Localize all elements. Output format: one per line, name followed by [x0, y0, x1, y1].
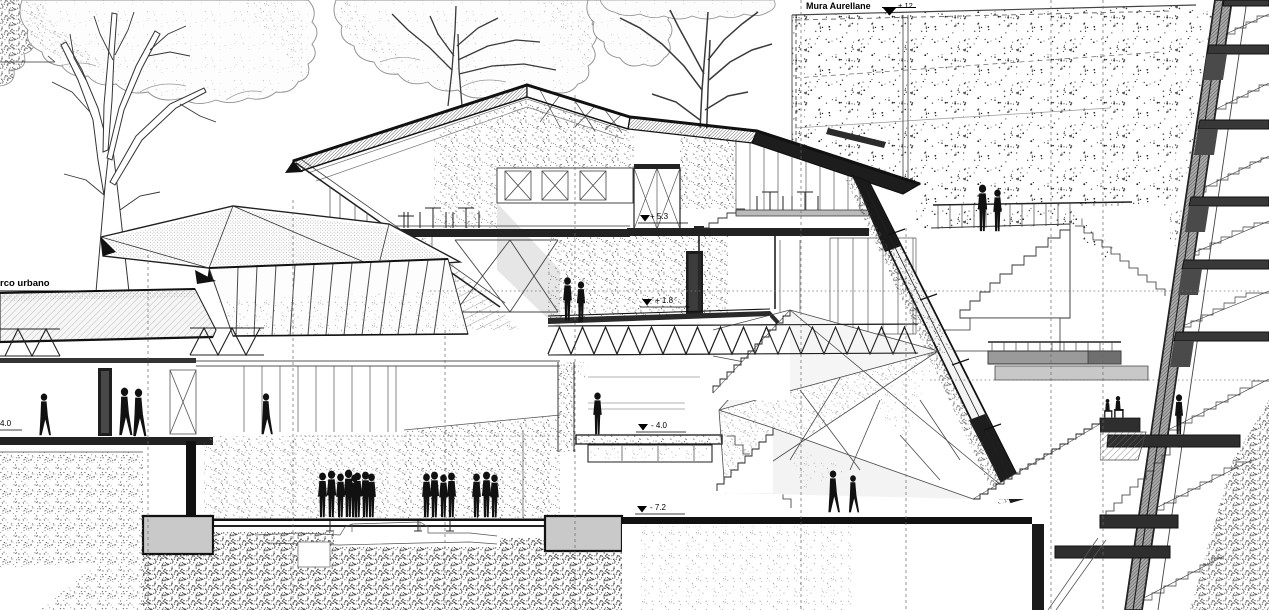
svg-text:- 7.2: - 7.2 — [650, 503, 667, 512]
svg-text:+ 12: + 12 — [898, 1, 913, 10]
svg-text:+ 1.8: + 1.8 — [655, 296, 674, 305]
svg-text:+ 5.3: + 5.3 — [650, 212, 669, 221]
svg-text:- 4.0: - 4.0 — [651, 421, 668, 430]
svg-text:4.0: 4.0 — [0, 419, 12, 428]
svg-text:rco urbano: rco urbano — [0, 278, 50, 289]
svg-text:Mura Aurellane: Mura Aurellane — [806, 1, 871, 11]
